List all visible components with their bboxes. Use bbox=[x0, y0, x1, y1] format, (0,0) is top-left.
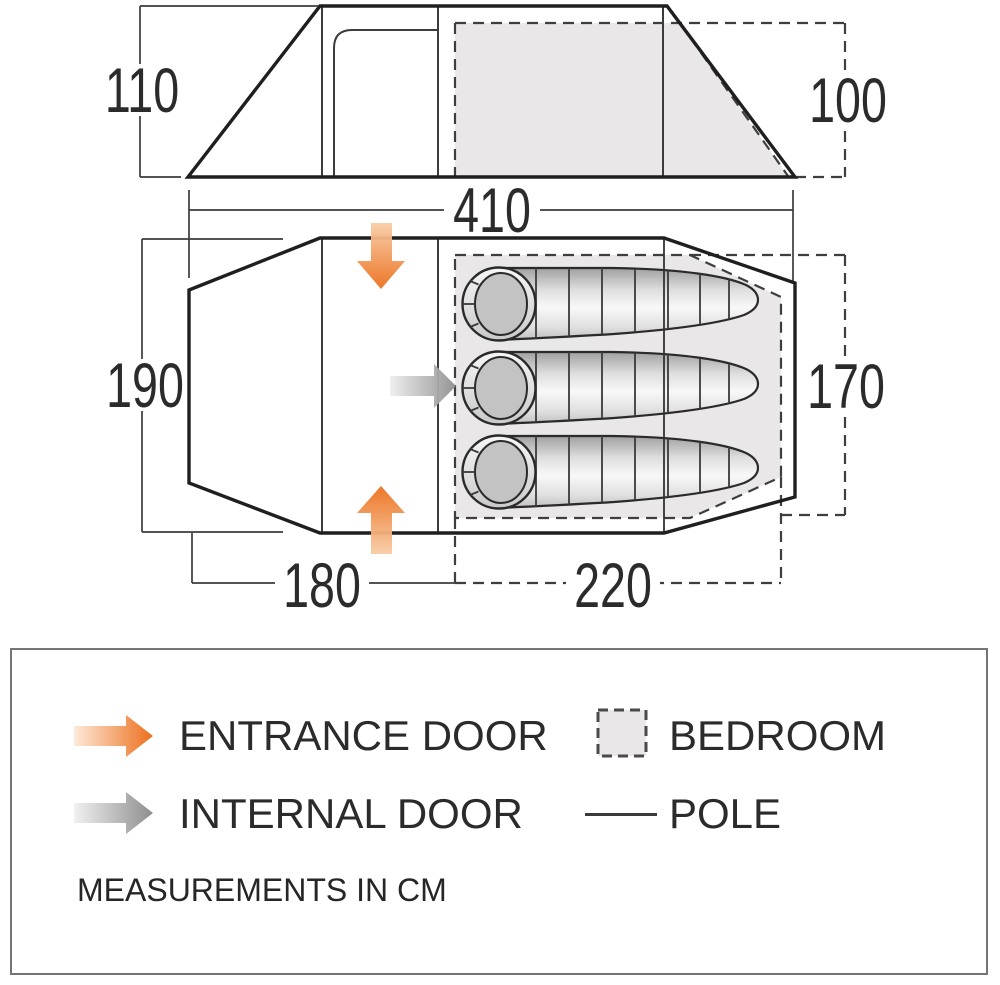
entrance-door-arrow-icon bbox=[74, 713, 154, 759]
dim-220: 220 bbox=[566, 550, 660, 620]
legend-pole-label: POLE bbox=[669, 790, 781, 838]
dim-220-text: 220 bbox=[574, 550, 652, 620]
bedroom-swatch-icon bbox=[595, 707, 649, 759]
internal-door-arrow-icon bbox=[74, 790, 154, 836]
dim-110-text: 110 bbox=[105, 55, 179, 125]
tent-diagram: 110 100 410 190 170 180 220 bbox=[0, 0, 1000, 625]
measurements-note: MEASUREMENTS IN CM bbox=[77, 872, 447, 909]
dim-170-text: 170 bbox=[807, 351, 885, 421]
dim-170: 170 bbox=[804, 351, 888, 421]
floor-plan-view bbox=[142, 223, 845, 583]
legend-bedroom-label: BEDROOM bbox=[669, 712, 886, 760]
dim-190: 190 bbox=[104, 350, 186, 420]
dim-410: 410 bbox=[444, 175, 540, 245]
dim-100-text: 100 bbox=[809, 65, 887, 135]
dim-100: 100 bbox=[806, 65, 890, 135]
legend-box: ENTRANCE DOOR BEDROOM INTERNAL DOOR POLE… bbox=[10, 648, 988, 975]
pole-line-icon bbox=[585, 813, 657, 816]
dim-190-text: 190 bbox=[106, 350, 184, 420]
legend-entrance-door-label: ENTRANCE DOOR bbox=[179, 712, 548, 760]
dim-180: 180 bbox=[275, 550, 369, 620]
legend-internal-door-label: INTERNAL DOOR bbox=[179, 790, 523, 838]
dim-410-text: 410 bbox=[453, 175, 531, 245]
dim-180-text: 180 bbox=[283, 550, 361, 620]
dim-110: 110 bbox=[101, 55, 183, 125]
